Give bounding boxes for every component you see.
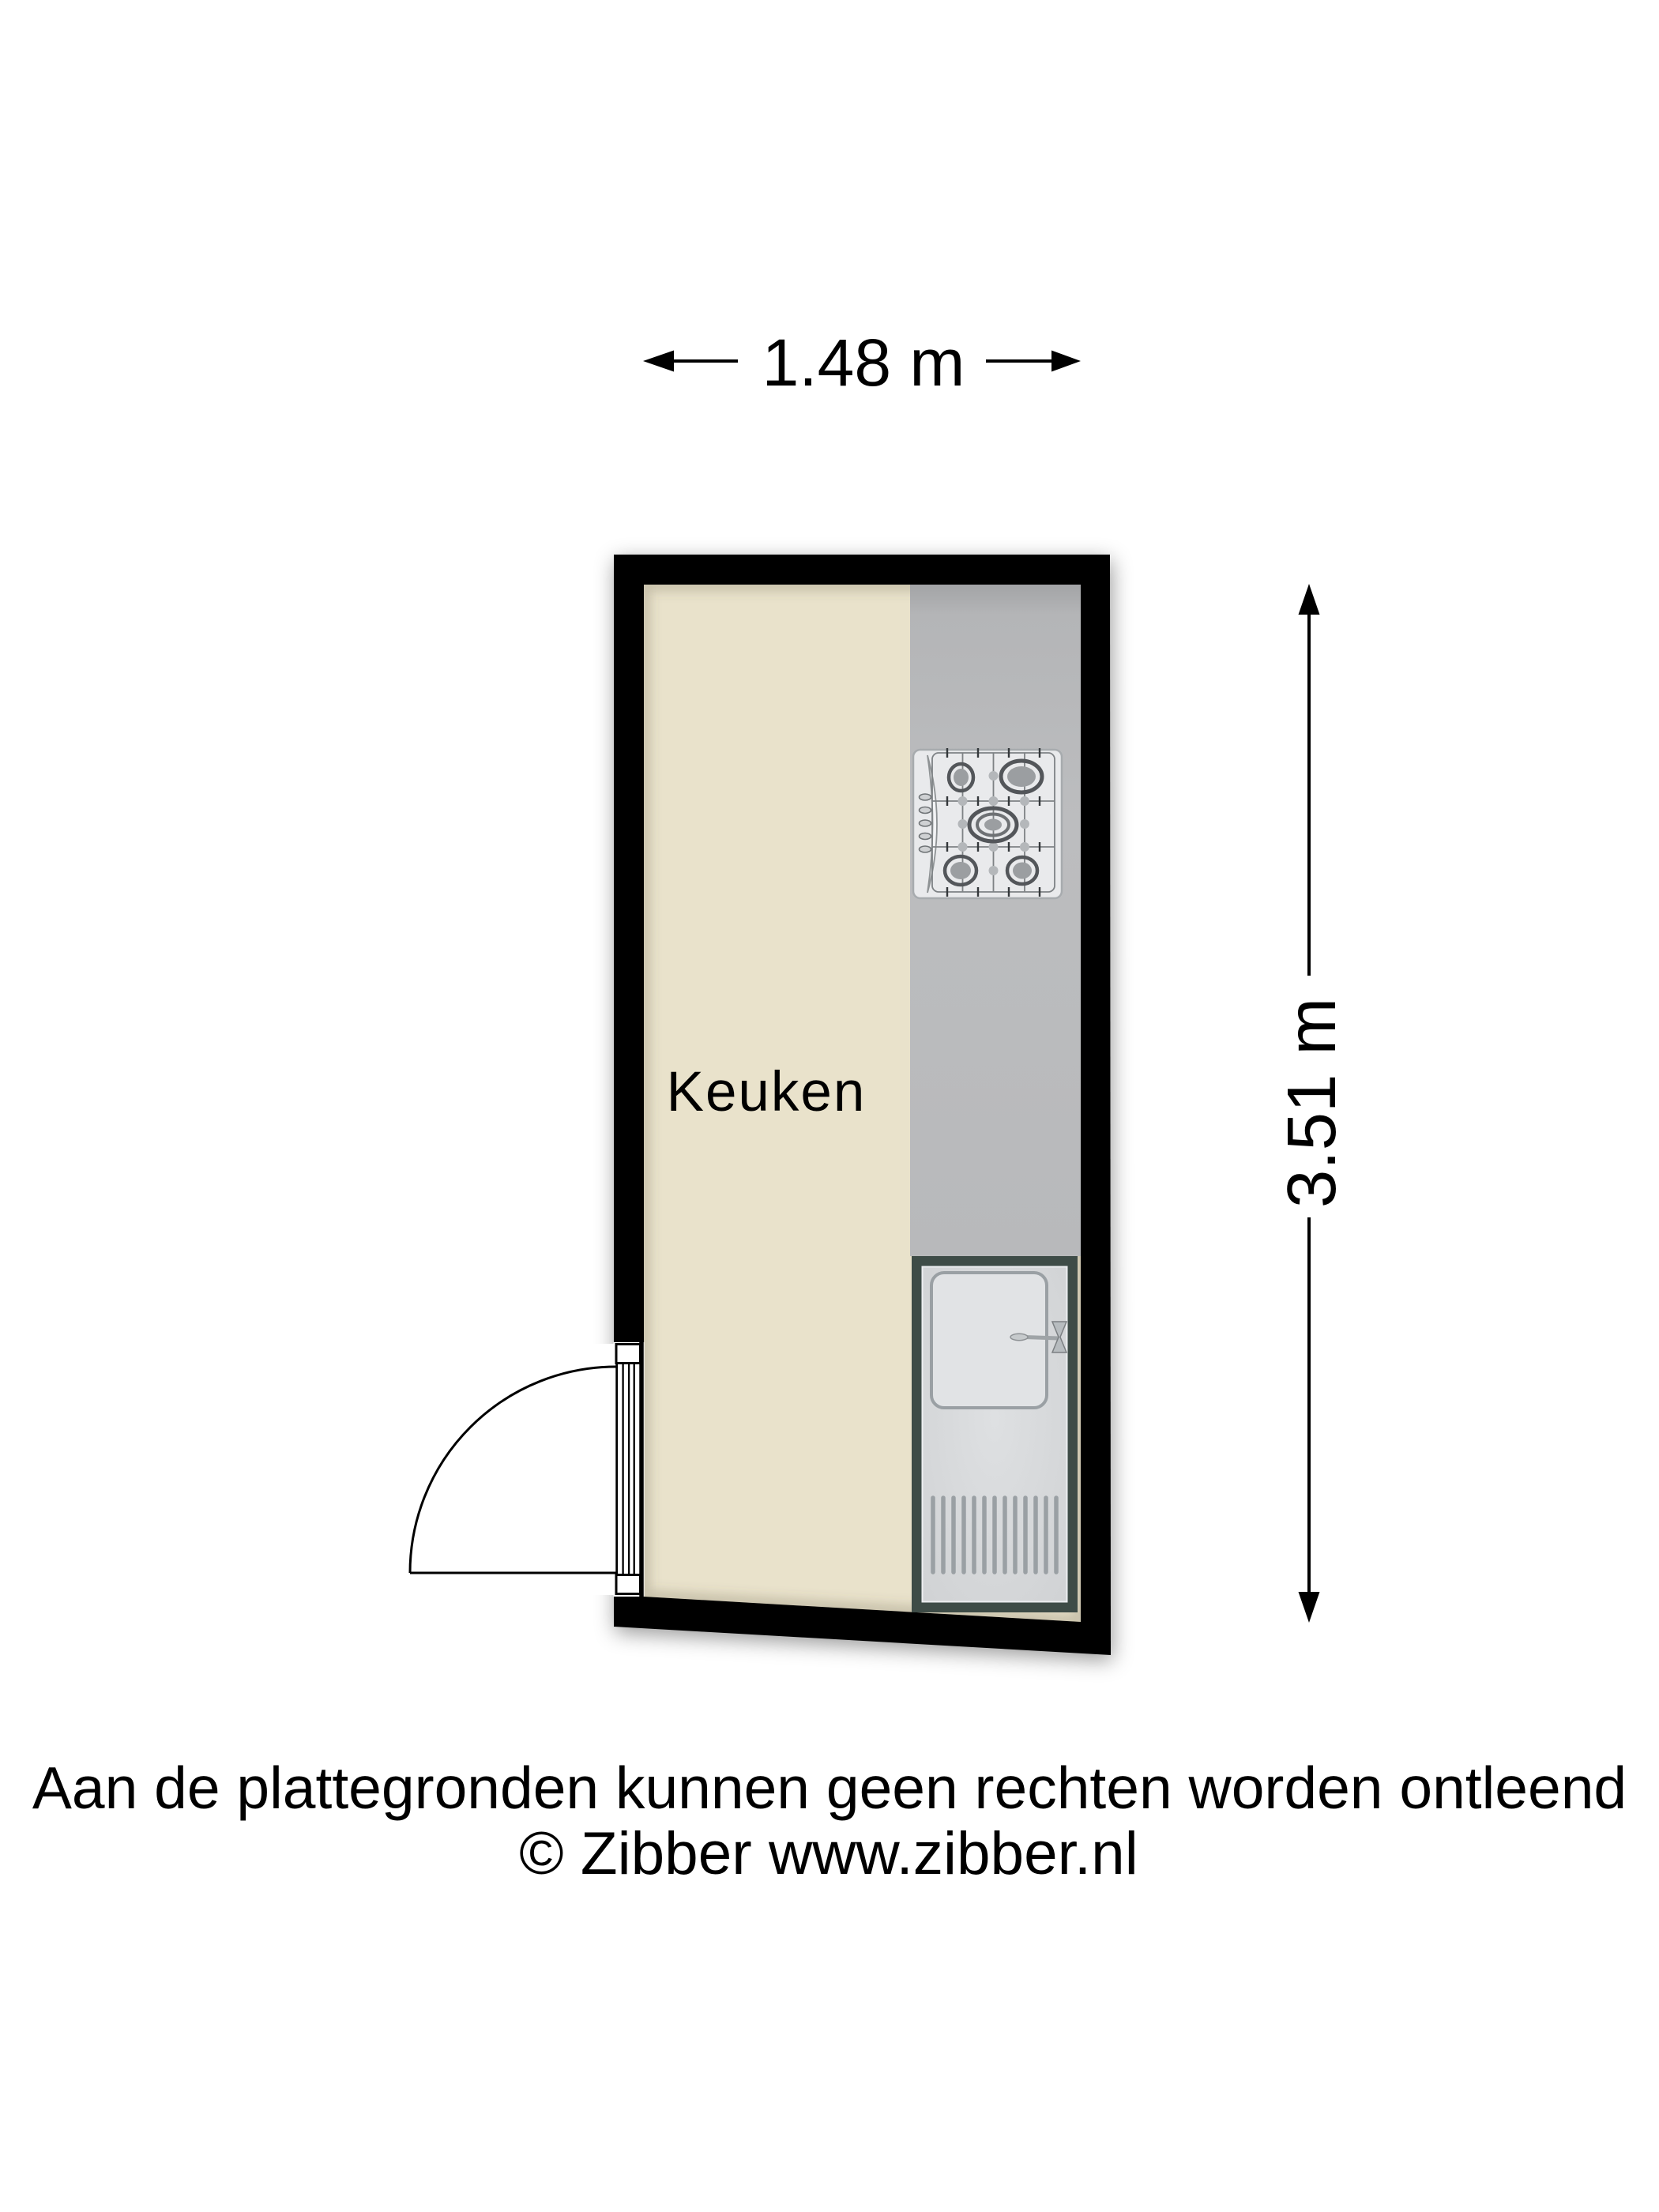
svg-text:1.48 m: 1.48 m xyxy=(762,325,965,400)
svg-text:Aan de plattegronden kunnen ge: Aan de plattegronden kunnen geen rechten… xyxy=(32,1755,1627,1821)
svg-text:Keuken: Keuken xyxy=(667,1061,867,1123)
svg-text:3.51 m: 3.51 m xyxy=(1273,998,1350,1208)
svg-text:© Zibber www.zibber.nl: © Zibber www.zibber.nl xyxy=(519,1820,1138,1887)
